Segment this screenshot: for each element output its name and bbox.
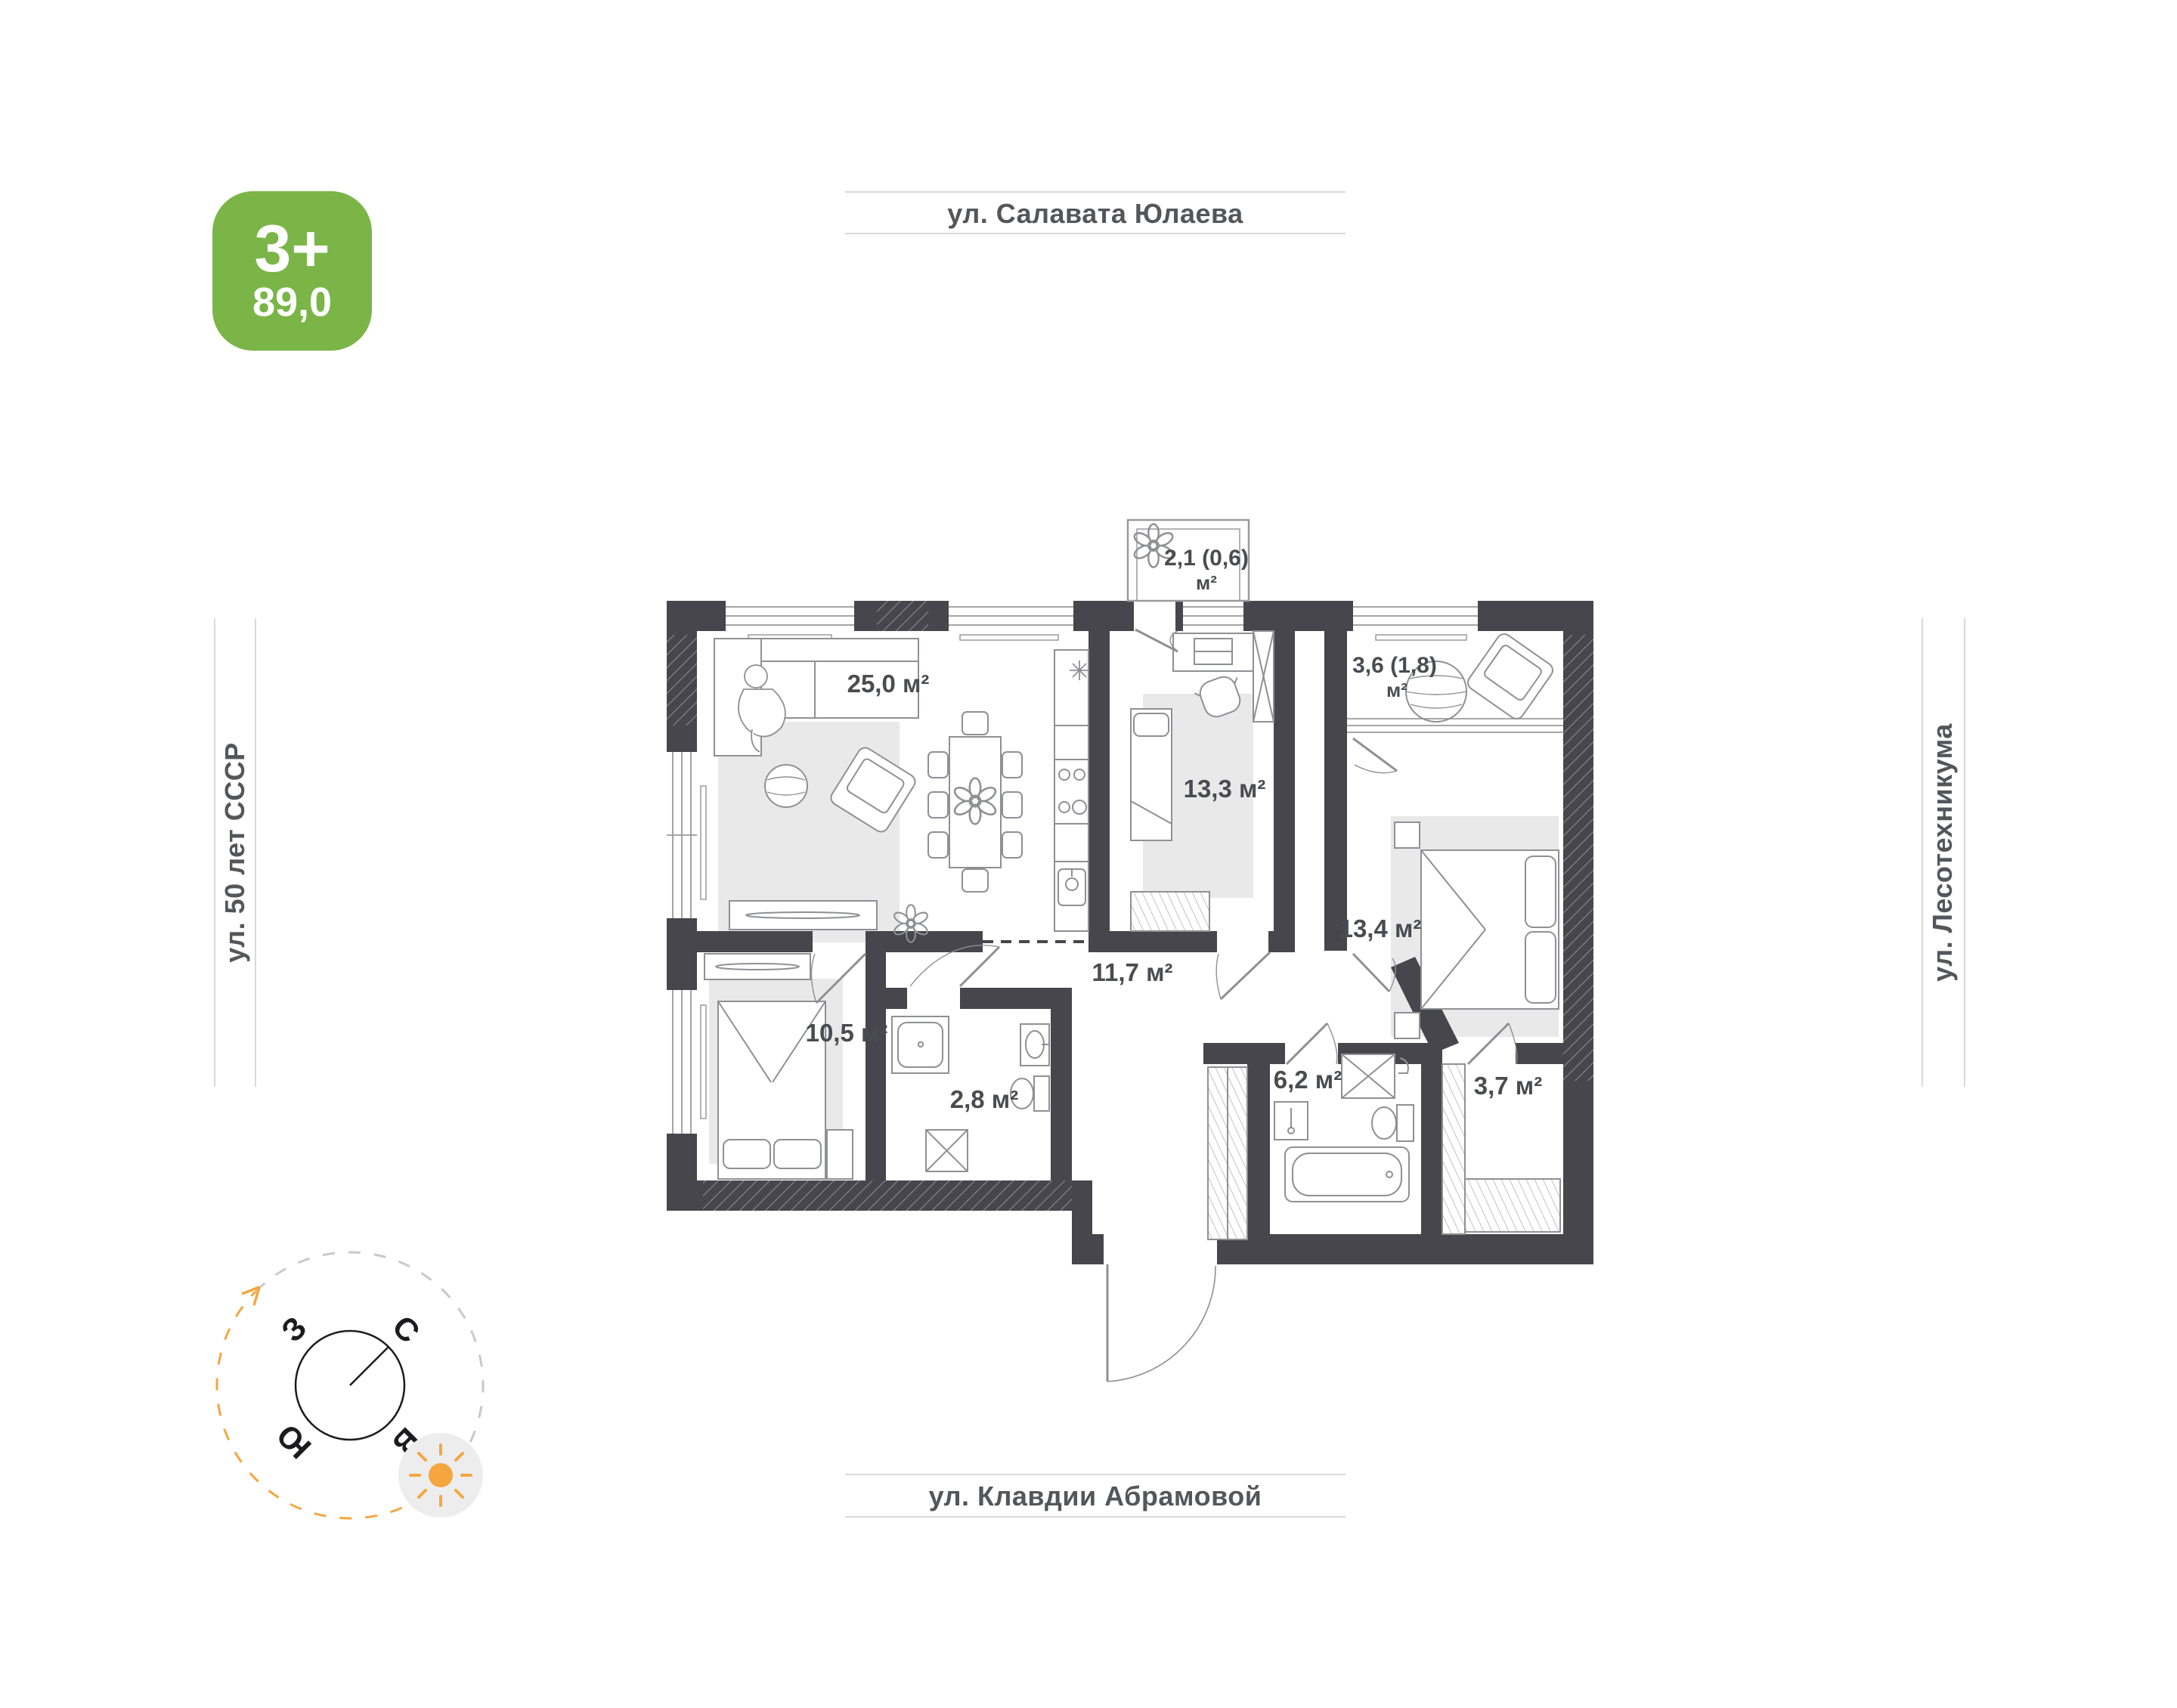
kitchen-counter <box>1054 650 1089 931</box>
radiator <box>960 635 1058 640</box>
compass-letter-south: Ю <box>270 1417 318 1465</box>
street-line-top-1 <box>845 191 1346 193</box>
compass: С З Ю В <box>204 1239 522 1557</box>
bathtub <box>1285 1147 1409 1202</box>
room-label-balcony-unit: м² <box>1196 571 1217 594</box>
window-loggia <box>1353 601 1478 631</box>
door-loggia <box>1353 738 1397 773</box>
window-top-1 <box>726 601 854 631</box>
street-line-right-1 <box>1922 618 1923 1087</box>
badge-area-value: 89,0 <box>252 280 332 325</box>
area-badge: 3+ 89,0 <box>212 191 372 351</box>
dresser-bedroom2 <box>1131 892 1209 931</box>
street-label-bottom: ул. Клавдии Абрамовой <box>845 1481 1346 1512</box>
wardrobe-strip <box>1442 1064 1465 1234</box>
compass-letter-north: С <box>386 1308 427 1350</box>
window-top-2 <box>949 601 1073 631</box>
street-line-left-1 <box>214 618 215 1087</box>
street-label-top: ул. Салавата Юлаева <box>845 198 1346 230</box>
sink-bathroom <box>1274 1102 1308 1140</box>
armchair-loggia <box>1465 631 1556 722</box>
door-entrance <box>1107 1264 1215 1382</box>
room-label-shower: 2,8 м² <box>950 1085 1018 1113</box>
street-label-right: ул. Лесотехникума <box>1927 723 1959 982</box>
street-line-bottom-1 <box>845 1474 1346 1475</box>
door-bathroom <box>1287 1023 1337 1064</box>
floorplan-drawing: 25,0 м² 13,3 м² 3,6 (1,8) м² 13,4 м² 11,… <box>650 506 1610 1421</box>
street-line-right-2 <box>1964 618 1965 1087</box>
room-label-bedroom3: 13,4 м² <box>1339 914 1422 942</box>
wardrobe-bedroom2 <box>1253 631 1274 722</box>
kitchen-sink-icon <box>1058 869 1085 905</box>
door-bedroom2 <box>1216 952 1270 999</box>
window-left-living <box>667 752 697 918</box>
street-line-bottom-2 <box>845 1516 1346 1518</box>
radiator <box>701 786 706 899</box>
street-line-left-2 <box>255 618 256 1087</box>
room-label-corridor: 11,7 м² <box>1092 958 1173 986</box>
floorplan-page: 3+ 89,0 ул. Салавата Юлаева ул. Клавдии … <box>0 0 2177 1708</box>
door-balcony <box>1135 630 1178 651</box>
room-label-loggia: 3,6 (1,8) <box>1352 653 1437 678</box>
wardrobe-shelf-bottom <box>1465 1179 1560 1232</box>
room-label-balcony: 2,1 (0,6) <box>1164 546 1249 571</box>
street-label-left: ул. 50 лет СССР <box>219 742 251 963</box>
room-label-loggia-unit: м² <box>1386 679 1407 701</box>
window-left-bedroom1 <box>667 990 697 1134</box>
radiator <box>701 1005 706 1119</box>
room-label-bedroom2: 13,3 м² <box>1184 775 1266 803</box>
door-bedroom3 <box>1353 954 1395 992</box>
street-line-top-2 <box>845 233 1346 234</box>
bed-single <box>1131 709 1172 840</box>
washing-machine-small <box>926 1130 968 1171</box>
tv-console <box>729 901 877 930</box>
room-label-bedroom1: 10,5 м² <box>806 1019 888 1047</box>
dining-set <box>928 712 1022 892</box>
radiator <box>1376 635 1466 640</box>
badge-rooms-count: 3+ <box>254 217 330 280</box>
room-label-bathroom: 6,2 м² <box>1274 1066 1342 1094</box>
pouf <box>765 765 807 807</box>
sink-shower-room <box>1020 1024 1049 1066</box>
compass-letter-west: З <box>274 1310 314 1349</box>
window-top-small <box>1183 601 1243 631</box>
window-loggia-inner <box>1347 714 1563 737</box>
room-label-wardrobe: 3,7 м² <box>1474 1072 1542 1100</box>
shower-cabin <box>892 1016 949 1073</box>
desk-bedroom2 <box>1173 633 1253 671</box>
toilet-bathroom <box>1372 1105 1414 1141</box>
sun-icon <box>398 1433 483 1518</box>
room-label-living: 25,0 м² <box>847 670 930 698</box>
